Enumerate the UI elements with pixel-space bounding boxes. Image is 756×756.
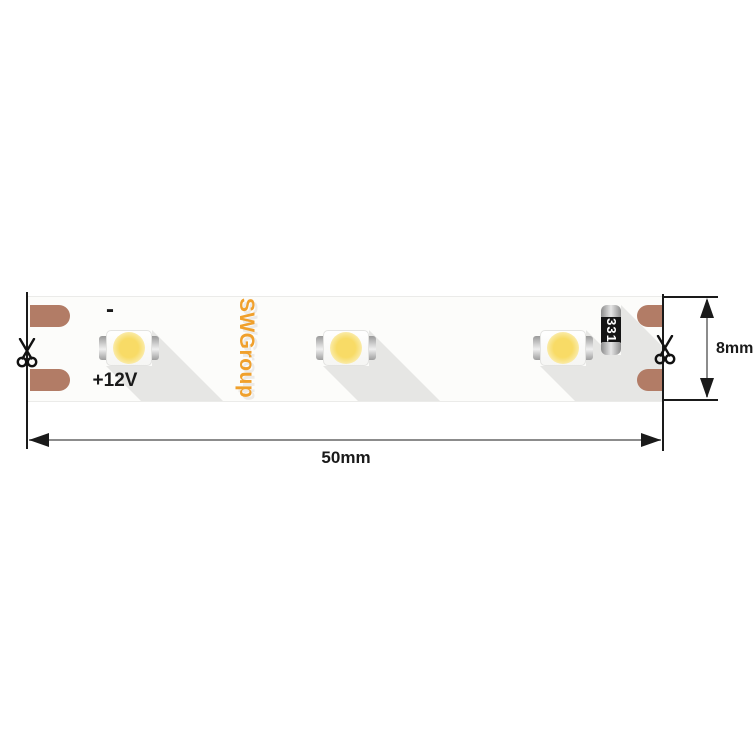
arrowhead-right-icon	[641, 433, 661, 447]
resistor-body: 331	[601, 317, 621, 343]
led-2	[323, 330, 369, 366]
arrowhead-down-icon	[700, 378, 714, 398]
arrowhead-left-icon	[29, 433, 49, 447]
width-dimension-label: 50mm	[300, 448, 392, 468]
led-chip	[330, 332, 362, 364]
width-dimension-line	[29, 439, 661, 441]
diagram-canvas: 331 SWGroup - +12V 50mm	[0, 0, 756, 756]
scissors-icon	[653, 335, 677, 365]
voltage-label: +12V	[83, 370, 147, 392]
copper-pad-right-top	[637, 305, 663, 327]
minus-polarity-label: -	[106, 299, 126, 321]
led-3	[540, 330, 586, 366]
brand-logo-text: SWGroup	[234, 298, 258, 398]
cut-line-right	[662, 294, 664, 451]
arrowhead-up-icon	[700, 298, 714, 318]
cut-line-left	[26, 292, 28, 449]
copper-pad-right-bottom	[637, 369, 663, 391]
led-strip: 331 SWGroup - +12V	[28, 297, 663, 401]
resistor: 331	[601, 305, 621, 355]
scissors-icon	[15, 338, 39, 368]
height-extension-line-bottom	[663, 399, 718, 401]
height-dimension-label: 8mm	[716, 340, 753, 358]
copper-pad-left-top	[30, 305, 70, 327]
led-chip	[547, 332, 579, 364]
resistor-cap	[601, 342, 621, 355]
led-1	[106, 330, 152, 366]
led-chip	[113, 332, 145, 364]
resistor-code-label: 331	[604, 318, 619, 343]
copper-pad-left-bottom	[30, 369, 70, 391]
